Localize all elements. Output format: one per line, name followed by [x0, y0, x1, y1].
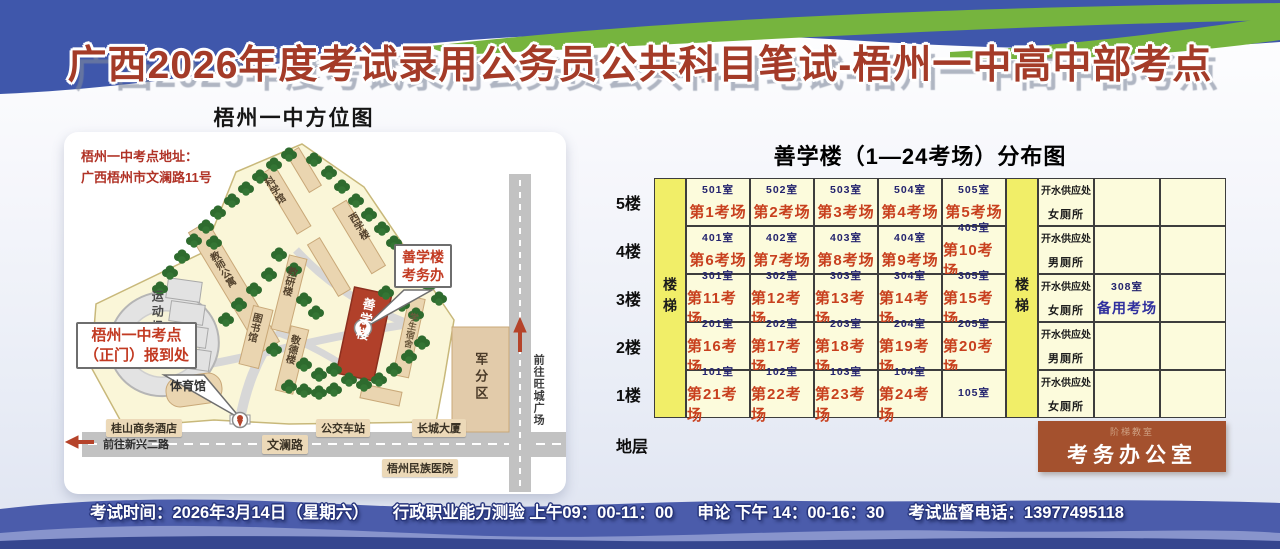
exam-hall-name: 第3考场 — [817, 201, 874, 222]
stairwell-right: 楼梯 — [1006, 178, 1038, 418]
room-number: 303室 — [830, 268, 862, 283]
map-label-gymnasium: 体育馆 — [170, 380, 206, 393]
water-supply-label: 开水供应处 — [1041, 278, 1091, 293]
exam-time-text: 考试时间：2026年3月14日（星期六） — [90, 499, 369, 523]
water-supply-label: 开水供应处 — [1041, 182, 1091, 197]
facilities-cell: 开水供应处女厕所 — [1038, 178, 1094, 226]
exam-hall-name: 第1考场 — [689, 201, 746, 222]
room-number: 402室 — [766, 230, 798, 245]
map-label-minzu-hospital: 梧州民族医院 — [382, 459, 458, 477]
gate-callout: 梧州一中考点 （正门）报到处 — [76, 322, 197, 369]
water-supply-label: 开水供应处 — [1041, 230, 1091, 245]
floor-label-5: 5楼 — [616, 178, 654, 226]
spare-hall-name: 备用考场 — [1097, 298, 1157, 318]
spare-cell — [1094, 370, 1160, 418]
toilet-label: 女厕所 — [1048, 206, 1084, 222]
gate-callout-line1: 梧州一中考点 — [84, 326, 189, 346]
empty-cell — [1160, 274, 1226, 322]
room-number: 503室 — [830, 182, 862, 197]
room-number: 202室 — [766, 316, 798, 331]
map-title: 梧州一中方位图 — [64, 102, 524, 132]
map-label-bus-station: 公交车站 — [316, 419, 370, 437]
exam-room-cell: 105室 — [942, 370, 1006, 418]
room-number: 405室 — [958, 220, 990, 235]
room-number: 104室 — [894, 364, 926, 379]
exam-affairs-office: 阶梯教室 考务办公室 — [1038, 421, 1226, 472]
exam-room-cell: 502室第2考场 — [750, 178, 814, 226]
empty-cell — [1160, 226, 1226, 274]
facilities-cell: 开水供应处男厕所 — [1038, 226, 1094, 274]
exam-hall-name: 第22考场 — [751, 383, 813, 425]
exam-room-cell: 504室第4考场 — [878, 178, 942, 226]
room-number: 504室 — [894, 182, 926, 197]
exam-room-cell: 501室第1考场 — [686, 178, 750, 226]
room-number: 305室 — [958, 268, 990, 283]
map-label-to-xinxing-road: 前往新兴二路 — [98, 435, 174, 453]
room-number: 403室 — [830, 230, 862, 245]
exam-room-cell: 102室第22考场 — [750, 370, 814, 418]
building-callout-line2: 考务办 — [402, 266, 444, 284]
room-number: 404室 — [894, 230, 926, 245]
gate-pin-icon — [233, 413, 248, 428]
facilities-cell: 开水供应处女厕所 — [1038, 370, 1094, 418]
stairwell-right-label: 楼梯 — [1012, 277, 1032, 319]
exam-hall-name: 第4考场 — [881, 201, 938, 222]
facilities-cell: 开水供应处男厕所 — [1038, 322, 1094, 370]
venue-address: 梧州一中考点地址： 广西梧州市文澜路11号 — [81, 147, 212, 189]
map-label-wenlan-road: 文澜路 — [262, 435, 308, 454]
spare-cell — [1094, 226, 1160, 274]
spare-room-number: 308室 — [1111, 279, 1143, 294]
empty-cell — [1160, 178, 1226, 226]
exam-hall-name: 第21考场 — [687, 383, 749, 425]
exam-room-cell: 103室第23考场 — [814, 370, 878, 418]
exam-hall-name: 第24考场 — [879, 383, 941, 425]
floor-label-2: 2楼 — [616, 322, 654, 370]
floor-label-1: 1楼 — [616, 370, 654, 418]
lecture-hall-label: 阶梯教室 — [1110, 425, 1154, 438]
room-number: 103室 — [830, 364, 862, 379]
exam-room-cell: 104室第24考场 — [878, 370, 942, 418]
floor-label-ground: 地层 — [616, 418, 654, 472]
distribution-title: 善学楼（1—24考场）分布图 — [650, 139, 1190, 171]
afternoon-subject-text: 申论 下午 14：00-16：30 — [697, 499, 884, 523]
room-number: 401室 — [702, 230, 734, 245]
venue-address-line1: 梧州一中考点地址： — [81, 147, 212, 168]
room-number: 302室 — [766, 268, 798, 283]
exam-room-cell: 101室第21考场 — [686, 370, 750, 418]
exam-affairs-office-label: 考务办公室 — [1067, 439, 1197, 469]
stairwell-left-label: 楼梯 — [660, 277, 680, 319]
empty-cell — [1160, 370, 1226, 418]
toilet-label: 男厕所 — [1048, 350, 1084, 366]
exam-room-cell: 503室第3考场 — [814, 178, 878, 226]
map-label-to-wangcheng-square: 前往旺城广场 — [532, 354, 544, 426]
room-number: 301室 — [702, 268, 734, 283]
gate-callout-line2: （正门）报到处 — [84, 346, 189, 366]
stairwell-left: 楼梯 — [654, 178, 686, 418]
exam-room-cell: 205室第20考场 — [942, 322, 1006, 370]
room-number: 101室 — [702, 364, 734, 379]
room-number: 205室 — [958, 316, 990, 331]
room-number: 201室 — [702, 316, 734, 331]
morning-subject-text: 行政职业能力测验 上午09：00-11：00 — [393, 499, 674, 523]
room-number: 204室 — [894, 316, 926, 331]
building-callout-line1: 善学楼 — [402, 248, 444, 266]
map-label-changcheng-tower: 长城大厦 — [412, 419, 466, 437]
room-number: 505室 — [958, 182, 990, 197]
empty-cell — [1160, 322, 1226, 370]
spare-cell — [1094, 178, 1160, 226]
exam-hall-name: 第23考场 — [815, 383, 877, 425]
floor-label-4: 4楼 — [616, 226, 654, 274]
room-number: 502室 — [766, 182, 798, 197]
map-label-military-district: 军分区 — [473, 352, 487, 403]
water-supply-label: 开水供应处 — [1041, 326, 1091, 341]
footer-info-bar: 考试时间：2026年3月14日（星期六） 行政职业能力测验 上午09：00-11… — [90, 499, 1124, 523]
exam-hall-name: 第2考场 — [753, 201, 810, 222]
campus-map-panel: 梧州一中考点地址： 广西梧州市文澜路11号 运动场 科学馆 教师公寓 西学楼 教… — [64, 132, 566, 494]
room-number: 203室 — [830, 316, 862, 331]
building-callout: 善学楼 考务办 — [394, 244, 452, 288]
page-title: 广西2026年度考试录用公务员公共科目笔试-梧州一中高中部考点 — [0, 34, 1280, 90]
toilet-label: 女厕所 — [1048, 302, 1084, 318]
toilet-label: 男厕所 — [1048, 254, 1084, 270]
water-supply-label: 开水供应处 — [1041, 374, 1091, 389]
supervision-phone-text: 考试监督电话：13977495118 — [908, 499, 1124, 523]
room-number: 102室 — [766, 364, 798, 379]
floor-label-3: 3楼 — [616, 274, 654, 322]
spare-exam-room-cell: 308室备用考场 — [1094, 274, 1160, 322]
facilities-cell: 开水供应处女厕所 — [1038, 274, 1094, 322]
room-number: 501室 — [702, 182, 734, 197]
room-number: 105室 — [958, 385, 990, 400]
room-number: 304室 — [894, 268, 926, 283]
toilet-label: 女厕所 — [1048, 398, 1084, 414]
room-distribution-table: 楼梯 楼梯 5楼 501室第1考场 502室第2考场 503室第3考场 504室… — [616, 178, 1226, 472]
spare-cell — [1094, 322, 1160, 370]
venue-address-line2: 广西梧州市文澜路11号 — [81, 168, 212, 189]
